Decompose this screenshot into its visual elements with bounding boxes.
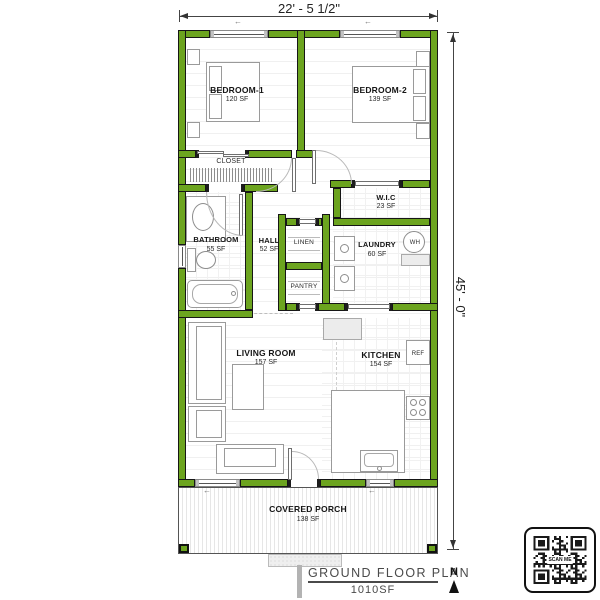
dimension-line: [179, 16, 438, 17]
armchair-cushion: [196, 410, 222, 438]
room-label-closet: CLOSET: [186, 158, 276, 166]
room-label-kitchen: KITCHEN: [346, 350, 416, 360]
sofa-cushion: [196, 326, 222, 400]
wall-segment: [392, 303, 438, 311]
door-jamb: [241, 184, 244, 192]
cL: [211, 31, 214, 37]
north-arrow: N: [445, 566, 463, 598]
linen-shelf-line: [288, 237, 320, 238]
pantry-shelf-line: [288, 281, 320, 282]
north-arrow-icon: [449, 580, 459, 593]
sink-basin: [364, 453, 394, 467]
sofa-cushion: [224, 448, 276, 467]
linen-shelf-line: [288, 250, 320, 251]
wall-segment: [278, 214, 286, 311]
dimension-arrow-icon: [450, 34, 456, 42]
room-label-bathroom: BATHROOM: [188, 235, 244, 245]
water-heater-label: WH: [404, 239, 426, 247]
nightstand-icon: [416, 123, 430, 139]
linen-door: [299, 219, 316, 224]
gH: [368, 483, 392, 484]
door-jamb: [206, 184, 209, 192]
title-underline: [308, 581, 438, 583]
wall-segment: [333, 218, 430, 226]
wall-segment: [297, 30, 305, 158]
hall-threshold-dashed: [249, 313, 293, 314]
room-area-wic: 23 SF: [345, 203, 427, 211]
room-label-bedroom1: BEDROOM-1: [197, 85, 277, 95]
door-jamb: [399, 180, 402, 188]
window: [210, 30, 268, 38]
gV: [182, 247, 183, 266]
door-jamb: [288, 479, 291, 487]
window: [178, 245, 186, 268]
closet-slider-door: [197, 151, 224, 154]
dryer-door-icon: [340, 274, 349, 283]
window-arrow-icon: ←: [368, 486, 376, 495]
wic-door: [355, 181, 399, 186]
dimension-arrow-icon: [429, 13, 437, 19]
wall-segment: [240, 479, 288, 487]
porch-post: [179, 544, 189, 553]
dimension-tick: [447, 32, 459, 33]
wall-segment: [320, 479, 366, 487]
dimension-tick: [437, 10, 438, 22]
nightstand-icon: [416, 51, 430, 67]
laundry-counter: [401, 254, 430, 266]
nightstand-icon: [187, 49, 200, 65]
cR: [236, 480, 239, 486]
coffee-table-icon: [232, 364, 264, 410]
dimension-line: [453, 33, 454, 549]
window-arrow-icon: ←: [203, 486, 211, 495]
closet-slider-door: [223, 154, 249, 157]
wall-segment: [178, 30, 186, 245]
width-dimension-label: 22' - 5 1/2": [229, 1, 389, 16]
wall-segment: [286, 218, 297, 226]
burner-icon: [410, 399, 417, 406]
wall-segment: [248, 150, 292, 158]
gH: [342, 34, 398, 35]
wall-segment: [430, 30, 438, 487]
wall-segment: [394, 479, 438, 487]
wall-segment: [178, 310, 253, 318]
burner-icon: [419, 399, 426, 406]
porch-post: [427, 544, 437, 553]
cR: [390, 480, 393, 486]
window: [195, 479, 240, 487]
pantry-door: [299, 304, 316, 309]
room-label-living: LIVING ROOM: [226, 348, 306, 358]
wall-segment: [178, 268, 186, 487]
wall-segment: [318, 303, 345, 311]
burner-icon: [410, 409, 417, 416]
title-divider-bar: [297, 565, 302, 598]
dimension-tick: [447, 549, 459, 550]
dimension-arrow-icon: [450, 540, 456, 548]
gH: [212, 34, 266, 35]
room-area-bedroom1: 120 SF: [197, 96, 277, 104]
qr-code: SCAN ME: [524, 527, 596, 593]
room-label-pantry: PANTRY: [286, 283, 322, 291]
washer-door-icon: [340, 244, 349, 253]
kitchen-counter: [323, 318, 362, 340]
pantry-shelf-line: [288, 294, 320, 295]
bedroom1-door-leaf: [292, 158, 296, 192]
wall-segment: [286, 262, 322, 270]
room-area-porch: 138 SF: [258, 516, 358, 524]
water-heater-icon: WH: [403, 231, 425, 253]
floor-plan-sheet: WH REF: [0, 0, 600, 600]
room-label-hall: HALL: [247, 236, 291, 246]
room-area-bathroom: 55 SF: [188, 246, 244, 254]
wall-segment: [178, 479, 195, 487]
room-area-kitchen: 154 SF: [346, 361, 416, 369]
height-dimension-label: 45' - 0": [453, 252, 468, 342]
room-area-living: 157 SF: [226, 359, 306, 367]
room-area-hall: 52 SF: [247, 246, 291, 254]
room-area-laundry: 60 SF: [352, 251, 402, 259]
gH: [197, 483, 238, 484]
room-label-wic: W.I.C: [345, 193, 427, 203]
cR: [396, 31, 399, 37]
total-area-label: 1010SF: [308, 584, 438, 596]
tub-drain-icon: [231, 291, 236, 296]
wall-segment: [402, 180, 430, 188]
north-label: N: [445, 566, 463, 578]
door-jamb: [317, 479, 320, 487]
wall-segment: [178, 150, 196, 158]
dimension-arrow-icon: [180, 13, 188, 19]
cL: [341, 31, 344, 37]
qr-scan-label: SCAN ME: [546, 556, 573, 564]
wall-segment: [286, 303, 297, 311]
room-area-bedroom2: 139 SF: [340, 96, 420, 104]
room-label-laundry: LAUNDRY: [352, 240, 402, 250]
wall-segment: [333, 188, 341, 218]
burner-icon: [419, 409, 426, 416]
wall-segment: [322, 214, 330, 311]
window-arrow-icon: ←: [364, 17, 372, 26]
faucet-icon: [377, 466, 382, 471]
room-label-linen: LINEN: [286, 239, 322, 247]
window: [340, 30, 400, 38]
room-label-porch: COVERED PORCH: [258, 504, 358, 514]
wall-segment: [318, 218, 322, 226]
cL: [196, 480, 199, 486]
window-arrow-icon: ←: [234, 17, 242, 26]
cR: [264, 31, 267, 37]
room-label-bedroom2: BEDROOM-2: [340, 85, 420, 95]
wall-segment: [178, 184, 206, 192]
laundry-door: [348, 304, 390, 309]
nightstand-icon: [187, 122, 200, 138]
